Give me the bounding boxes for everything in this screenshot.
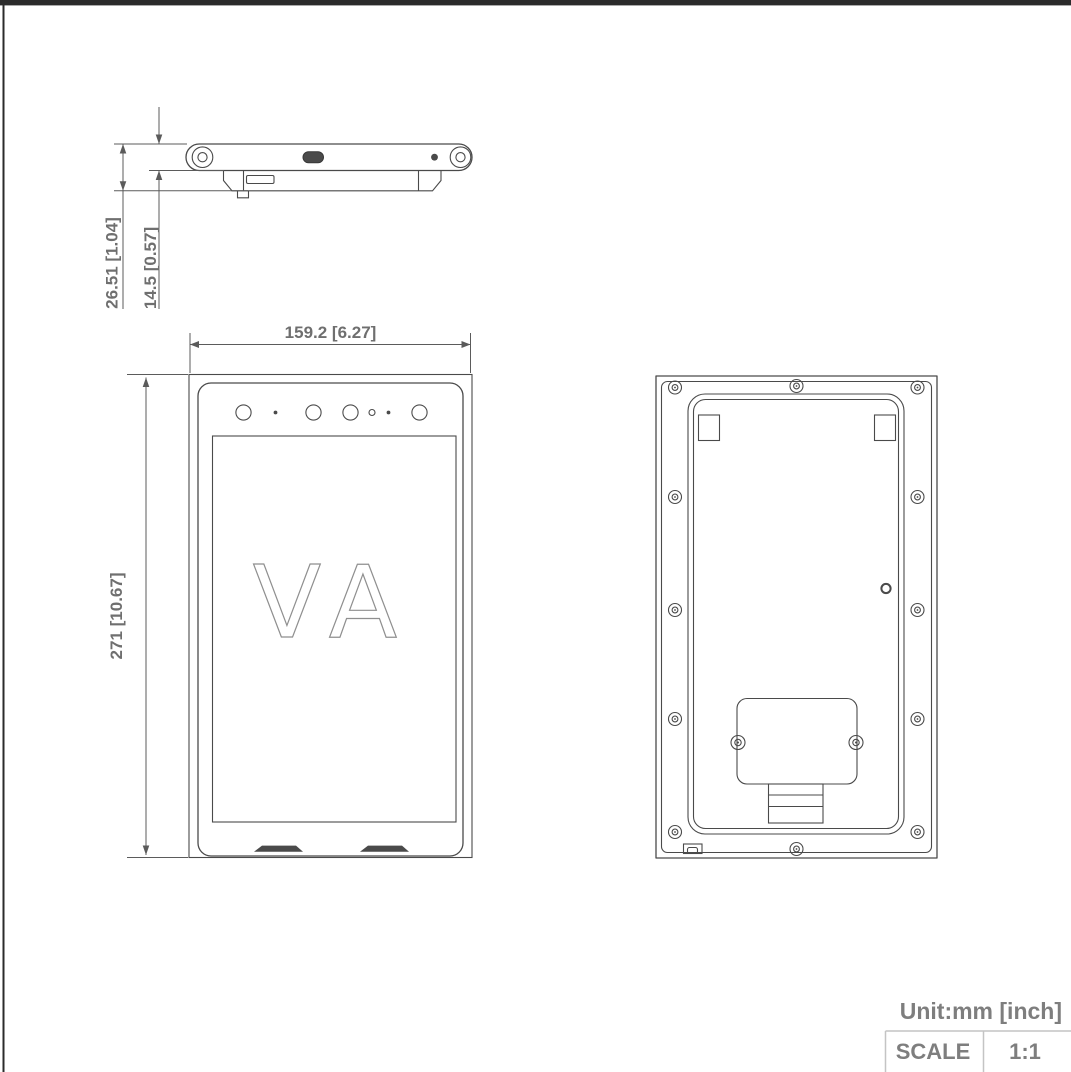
- screw: [911, 381, 924, 394]
- arrow-down-icon: [156, 135, 163, 145]
- camera-lens: [236, 405, 251, 420]
- screw: [669, 826, 682, 839]
- scale-value: 1:1: [1009, 1039, 1041, 1064]
- page-left-border: [3, 5, 5, 1072]
- top-view-mount-housing: [224, 171, 442, 191]
- screw: [911, 826, 924, 839]
- reset-hole: [881, 584, 890, 593]
- top-view-tab: [238, 191, 249, 198]
- screw: [790, 843, 803, 856]
- sensor-dot: [387, 411, 391, 415]
- mount-hook-cutout: [699, 415, 720, 441]
- extension-lines: [127, 375, 188, 858]
- screw: [192, 147, 213, 168]
- page-top-border: [0, 0, 1071, 5]
- cable-channel-ridges: [769, 795, 824, 807]
- top-view: [186, 144, 472, 198]
- card-slot: [247, 176, 275, 184]
- cover-screw: [731, 736, 745, 750]
- extension-lines: [114, 144, 248, 191]
- mount-hook-cutout: [875, 415, 896, 441]
- arrow-right-icon: [462, 341, 471, 348]
- back-panel-inner: [694, 400, 899, 829]
- microphone-hole: [431, 154, 438, 161]
- sensor-ring: [369, 410, 375, 416]
- arrow-down-icon: [120, 181, 127, 191]
- top-view-housing-edges: [244, 171, 419, 191]
- camera-lens: [412, 405, 427, 420]
- dim-label-height: 271 [10.67]: [107, 573, 126, 660]
- camera-lens: [343, 405, 358, 420]
- drawing-page: 26.51 [1.04] 14.5 [0.57] VA 159.2 [6.27]: [0, 0, 1071, 1072]
- screw: [669, 381, 682, 394]
- screw: [669, 604, 682, 617]
- back-view-inner-frame: [662, 382, 932, 853]
- screw: [911, 604, 924, 617]
- back-view: [656, 376, 937, 858]
- arrow-left-icon: [190, 341, 199, 348]
- top-view-body: [186, 144, 472, 171]
- sensor-dot: [274, 411, 278, 415]
- arrow-up-icon: [143, 378, 150, 388]
- screw: [669, 713, 682, 726]
- dim-label-width: 159.2 [6.27]: [285, 323, 377, 342]
- top-view-dimensions: 26.51 [1.04] 14.5 [0.57]: [103, 107, 249, 309]
- cable-cover: [737, 699, 857, 785]
- dim-label-total-depth: 26.51 [1.04]: [103, 217, 122, 309]
- usb-port: [303, 152, 324, 163]
- screw: [450, 147, 471, 168]
- sensor-row: [236, 405, 427, 420]
- scale-label: SCALE: [896, 1039, 971, 1064]
- screw: [911, 491, 924, 504]
- footer: Unit:mm [inch] SCALE 1:1: [886, 998, 1071, 1072]
- front-view: VA: [189, 375, 472, 858]
- speaker-grille: [360, 846, 409, 852]
- back-view-outer-frame: [656, 376, 937, 858]
- page-top-border-shadow: [0, 5, 1071, 6]
- speaker-grille: [254, 846, 303, 852]
- camera-lens: [306, 405, 321, 420]
- arrow-up-icon: [120, 144, 127, 154]
- dim-label-body-depth: 14.5 [0.57]: [141, 227, 160, 309]
- arrow-down-icon: [143, 846, 150, 856]
- screw: [911, 713, 924, 726]
- cover-screw: [849, 736, 863, 750]
- arrow-up-icon: [156, 171, 163, 181]
- brand-logo: VA: [253, 544, 411, 661]
- unit-label: Unit:mm [inch]: [900, 998, 1062, 1024]
- back-panel-outer: [688, 394, 904, 834]
- screw: [669, 491, 682, 504]
- cable-channel: [769, 784, 824, 823]
- page-frame: [0, 0, 1071, 1072]
